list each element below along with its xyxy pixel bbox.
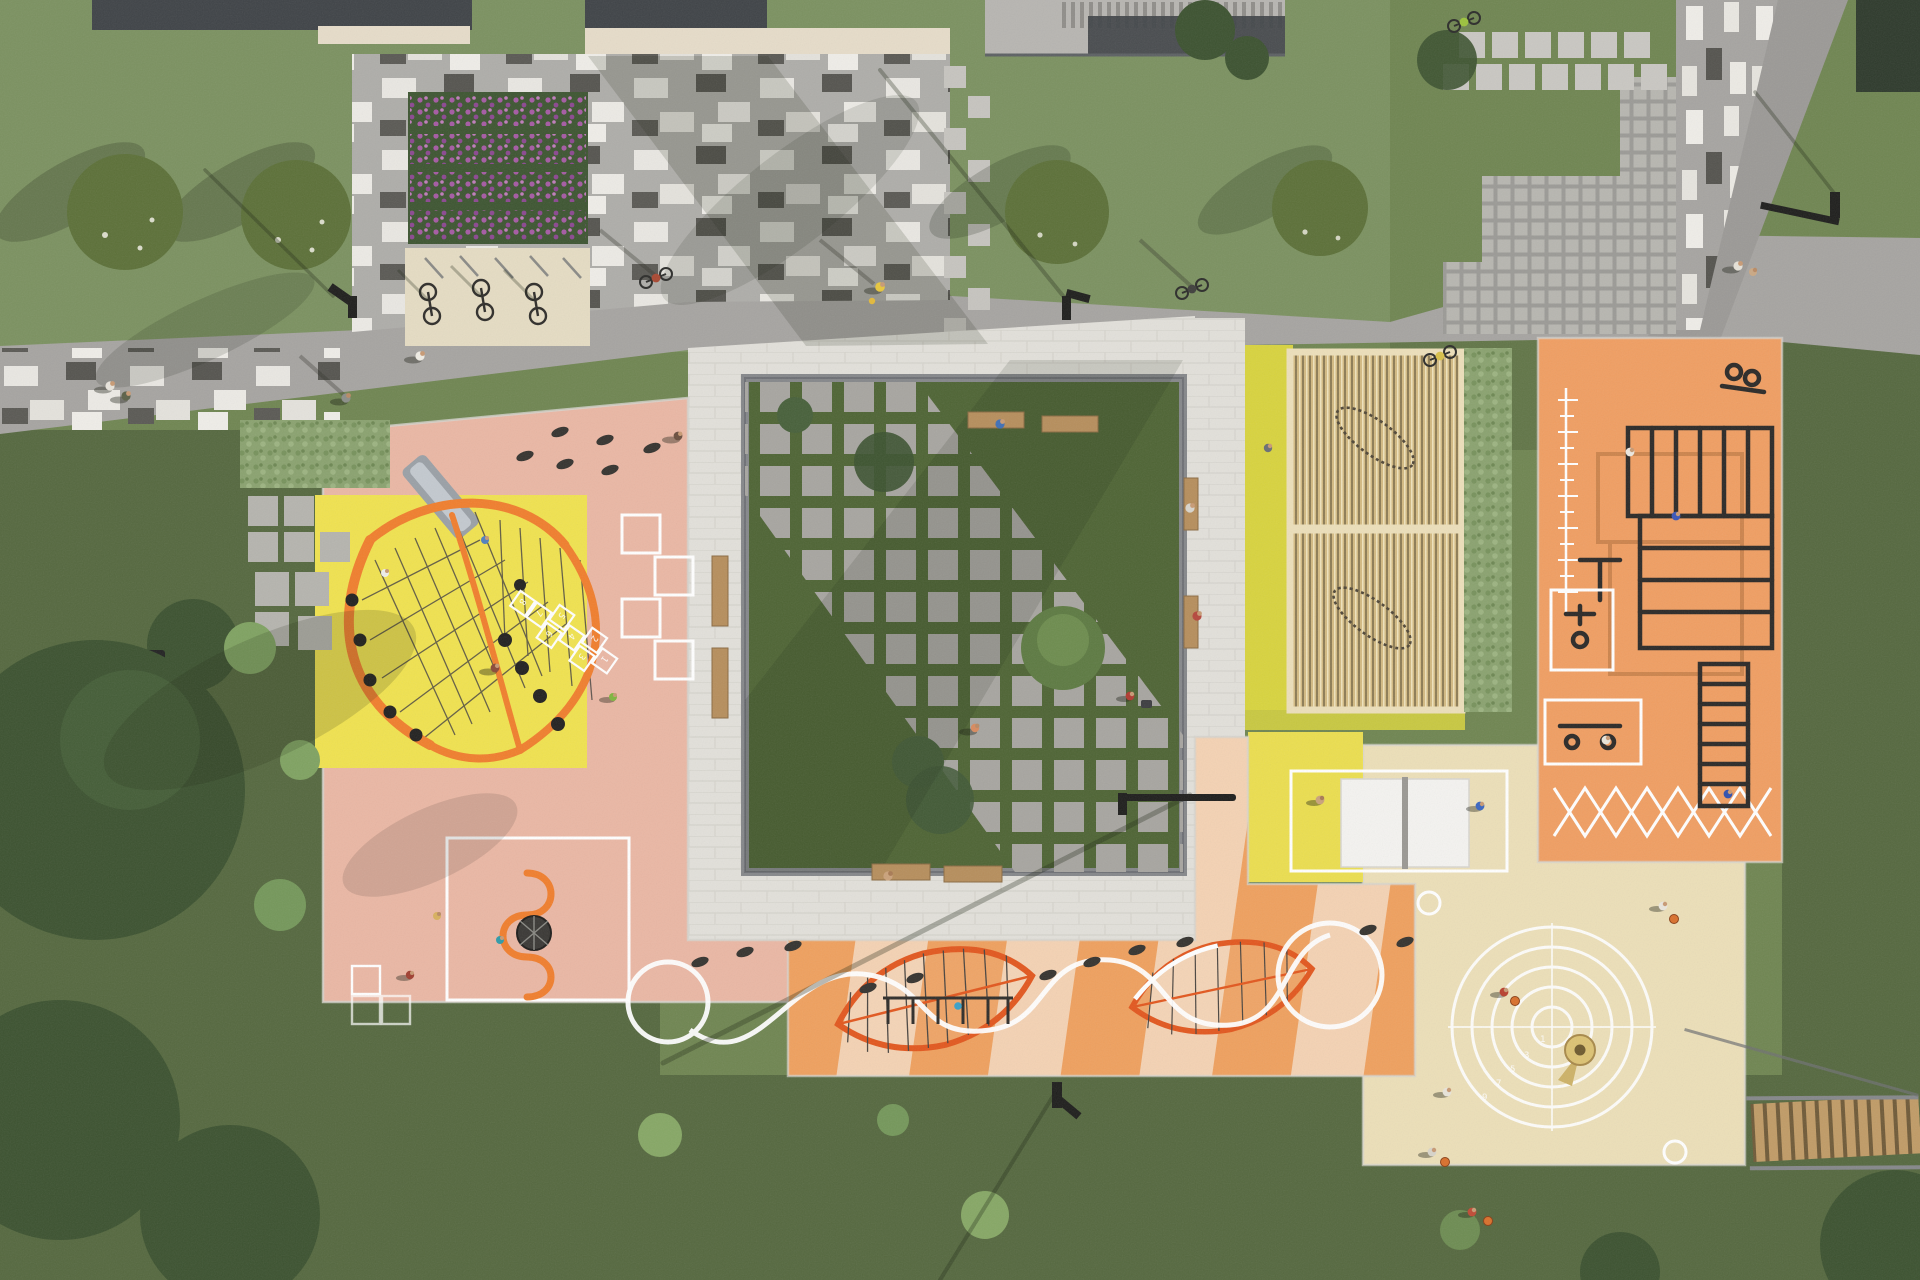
site-plan-svg: 1 2 3 4 5 6 7 8 <box>0 0 1920 1280</box>
aerial-render: 1 2 3 4 5 6 7 8 <box>0 0 1920 1280</box>
texture-overlay <box>0 0 1920 1280</box>
